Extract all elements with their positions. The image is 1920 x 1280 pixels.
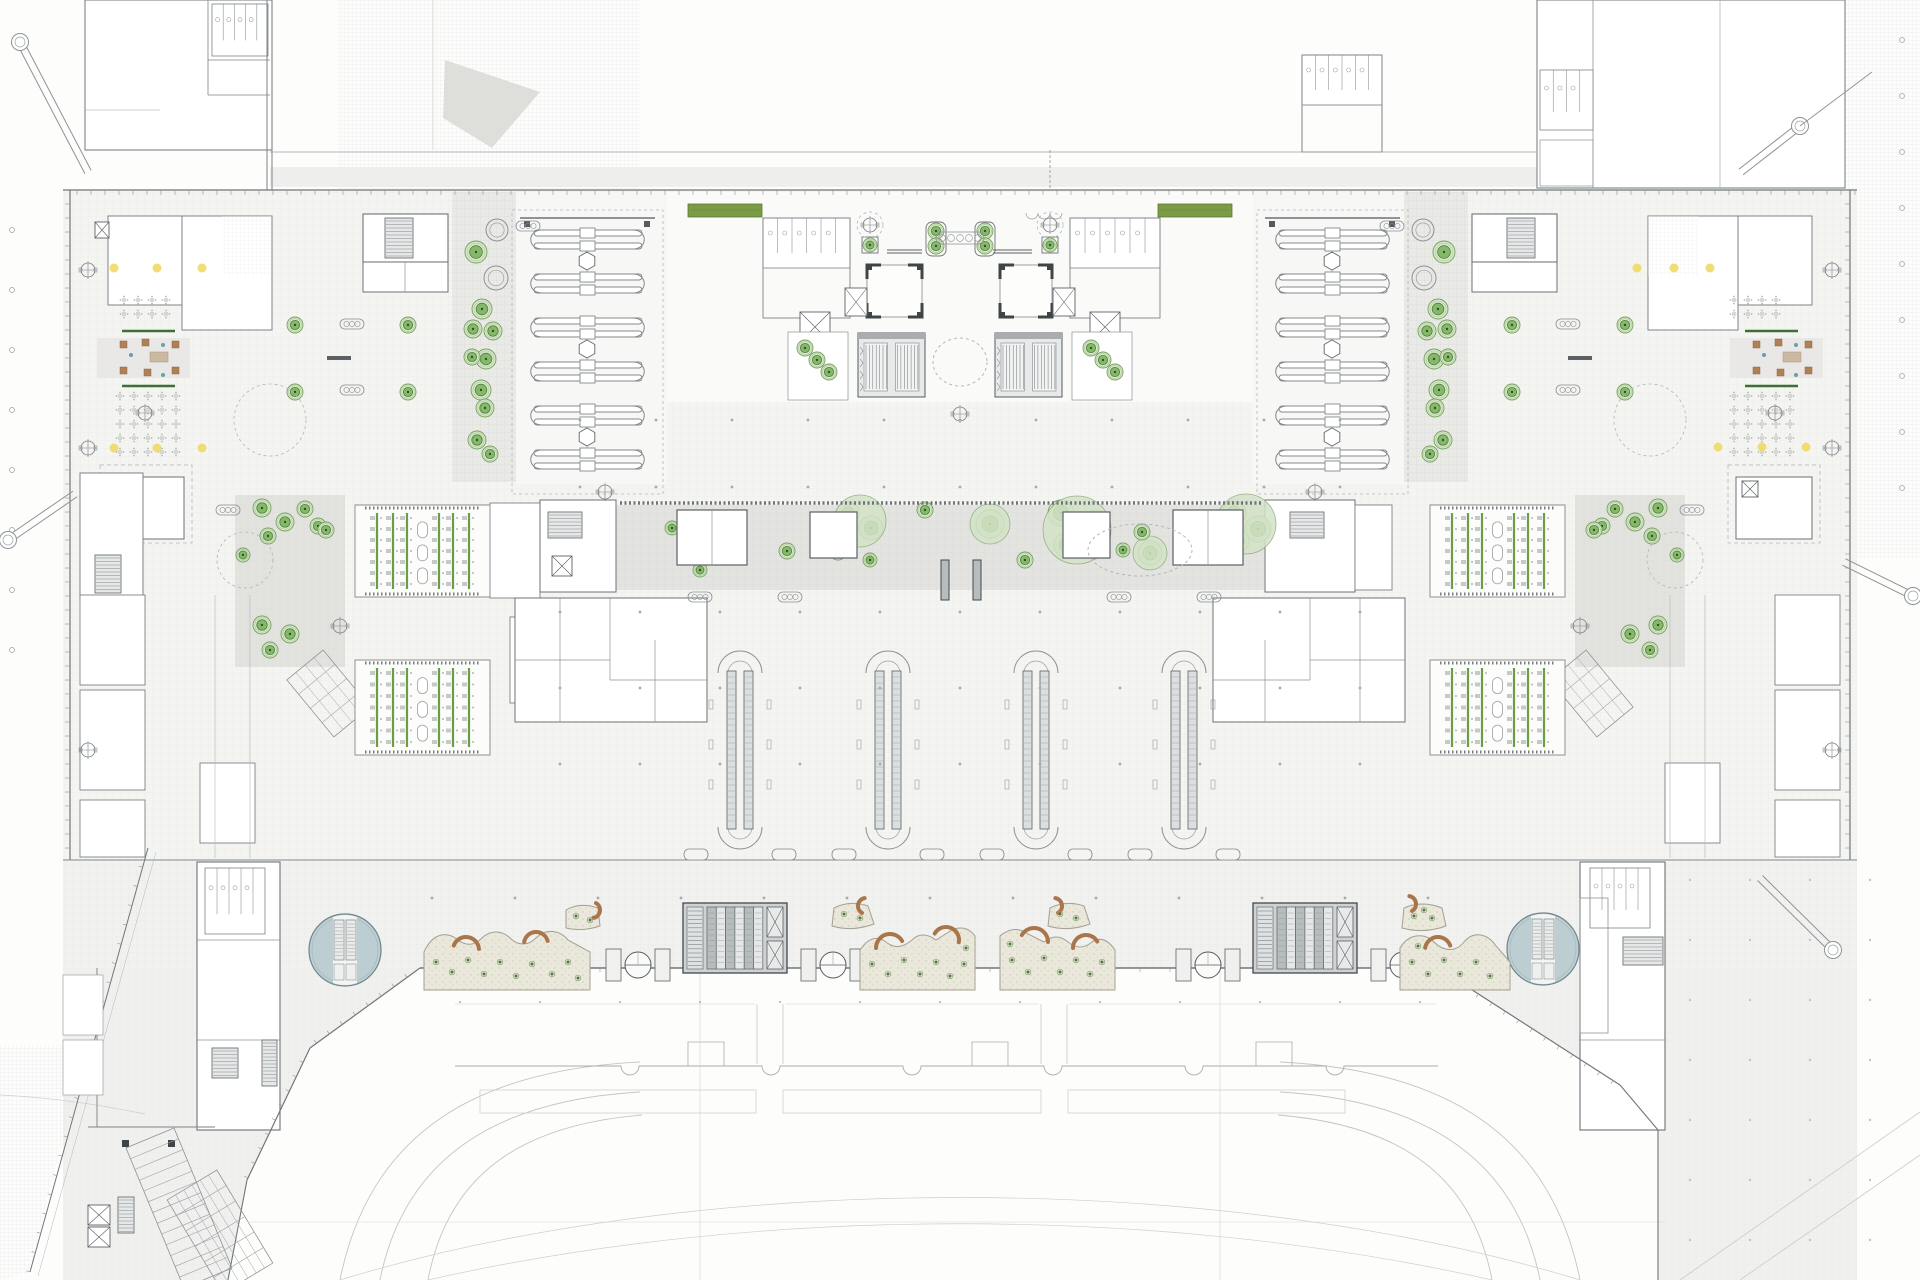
room	[1775, 690, 1840, 790]
tree	[1504, 384, 1520, 400]
roof-planter-strip	[688, 204, 762, 217]
tree	[318, 522, 334, 538]
planting-bed	[424, 931, 590, 990]
tree	[1649, 616, 1667, 634]
tree	[287, 317, 303, 333]
tree	[287, 384, 303, 400]
tree	[472, 299, 492, 319]
stair-core	[867, 265, 922, 317]
tree	[471, 380, 491, 400]
bench-dark	[1568, 356, 1592, 360]
cafe-tables	[97, 338, 190, 378]
tree	[1095, 352, 1111, 368]
escalator	[385, 218, 413, 258]
room-hatch	[222, 216, 272, 276]
yellow-marker	[1633, 264, 1642, 273]
seating-lounge	[1430, 660, 1565, 755]
room	[80, 690, 145, 790]
restroom-block	[1302, 55, 1382, 105]
tree	[1107, 364, 1123, 380]
kiosk	[810, 512, 857, 558]
room	[63, 975, 103, 1035]
yellow-marker	[1706, 264, 1715, 273]
escalator-bank	[683, 903, 787, 973]
tree	[779, 543, 795, 559]
tree	[400, 317, 416, 333]
escalator	[1290, 512, 1324, 538]
tree	[1617, 317, 1633, 333]
tree	[1428, 299, 1448, 319]
tree	[1017, 552, 1033, 568]
tree	[276, 513, 294, 531]
bench	[941, 560, 949, 600]
escalator	[118, 1197, 134, 1233]
yellow-marker	[153, 444, 162, 453]
restroom-block	[1540, 70, 1593, 130]
fixture	[168, 1140, 175, 1147]
restroom-block	[205, 868, 265, 934]
tree	[1043, 238, 1057, 252]
tree	[1438, 320, 1456, 338]
tree	[1426, 399, 1444, 417]
room	[80, 595, 145, 685]
tree	[863, 553, 877, 567]
revolving-door	[801, 949, 865, 981]
tree	[482, 446, 498, 462]
escalator-bank	[1253, 903, 1357, 973]
bench	[973, 560, 981, 600]
tree	[863, 238, 877, 252]
elevator	[845, 288, 867, 316]
tree	[260, 528, 276, 544]
tree-cluster	[1133, 536, 1167, 570]
room	[1472, 262, 1557, 292]
tree	[297, 501, 313, 517]
tree	[1134, 524, 1150, 540]
tree	[1434, 431, 1452, 449]
escalator-well	[858, 333, 925, 397]
tree	[977, 238, 993, 254]
room	[1775, 595, 1840, 685]
stair	[552, 556, 572, 576]
tree	[484, 322, 502, 340]
restroom-block	[1070, 218, 1160, 268]
tree	[236, 548, 250, 562]
yellow-marker	[198, 264, 207, 273]
tree	[1626, 513, 1644, 531]
tree	[1422, 446, 1438, 462]
stair-core	[1000, 265, 1052, 317]
room	[1775, 800, 1840, 857]
tree	[400, 384, 416, 400]
yellow-marker	[1670, 264, 1679, 273]
tree	[809, 352, 825, 368]
tree	[1621, 625, 1639, 643]
bench-dark	[327, 356, 351, 360]
tree	[1617, 384, 1633, 400]
revolving-door	[1176, 949, 1240, 981]
tree	[464, 349, 480, 365]
tree	[928, 238, 944, 254]
seating-lounge	[355, 505, 490, 597]
tree	[1607, 501, 1623, 517]
room	[363, 262, 448, 292]
tree	[1642, 642, 1658, 658]
revolving-door	[606, 949, 670, 981]
room	[108, 216, 182, 305]
seating-lounge	[355, 660, 490, 755]
tree	[262, 642, 278, 658]
room	[490, 503, 540, 598]
tree	[1083, 340, 1099, 356]
fixture	[122, 1140, 129, 1147]
room	[80, 800, 145, 857]
stair	[212, 1048, 238, 1078]
tree	[1418, 322, 1436, 340]
stair	[88, 1227, 110, 1247]
elevator	[95, 222, 109, 238]
restroom-block	[763, 218, 850, 268]
plan-layers	[0, 0, 1920, 1280]
tree	[465, 241, 487, 263]
tree	[1504, 317, 1520, 333]
water-feature	[309, 914, 381, 986]
roof-planter-strip	[1158, 204, 1232, 217]
yellow-marker	[110, 444, 119, 453]
tree	[1429, 380, 1449, 400]
stair	[95, 555, 121, 593]
seating-lounge	[1430, 505, 1565, 597]
room	[1355, 505, 1392, 590]
room	[1738, 216, 1812, 305]
yellow-marker	[1758, 443, 1767, 452]
tree	[1670, 548, 1684, 562]
room	[63, 1040, 103, 1095]
floor-plan-canvas	[0, 0, 1920, 1280]
tree	[977, 223, 993, 239]
stair	[88, 1205, 110, 1225]
tree	[1433, 241, 1455, 263]
escalator	[1507, 218, 1535, 258]
vent-shaft	[262, 1040, 277, 1086]
tree	[1649, 499, 1667, 517]
tree-cluster	[970, 504, 1010, 544]
cafe-tables	[1730, 338, 1823, 378]
tree	[1116, 543, 1130, 557]
elevator	[1742, 481, 1758, 497]
escalator-well	[995, 333, 1062, 397]
tree	[476, 399, 494, 417]
floor-plan-page	[0, 0, 1920, 1280]
yellow-marker	[110, 264, 119, 273]
courtyard-floor	[665, 192, 1255, 402]
yellow-marker	[1802, 443, 1811, 452]
tree	[797, 340, 813, 356]
tree	[1440, 349, 1456, 365]
roof-edge-band	[270, 167, 1650, 187]
tree	[468, 431, 486, 449]
elevator	[1053, 288, 1075, 316]
tree	[253, 499, 271, 517]
escalator	[548, 512, 582, 538]
tree	[1586, 522, 1602, 538]
kiosk	[1063, 512, 1110, 558]
tree	[253, 616, 271, 634]
tree	[281, 625, 299, 643]
yellow-marker	[198, 444, 207, 453]
room	[200, 763, 255, 843]
tree	[821, 364, 837, 380]
water-feature	[1507, 913, 1579, 985]
stair	[1623, 937, 1663, 965]
restroom-block	[212, 4, 268, 56]
room	[1665, 763, 1720, 843]
tree	[464, 320, 482, 338]
yellow-marker	[1714, 443, 1723, 452]
tree	[1644, 528, 1660, 544]
yellow-marker	[153, 264, 162, 273]
